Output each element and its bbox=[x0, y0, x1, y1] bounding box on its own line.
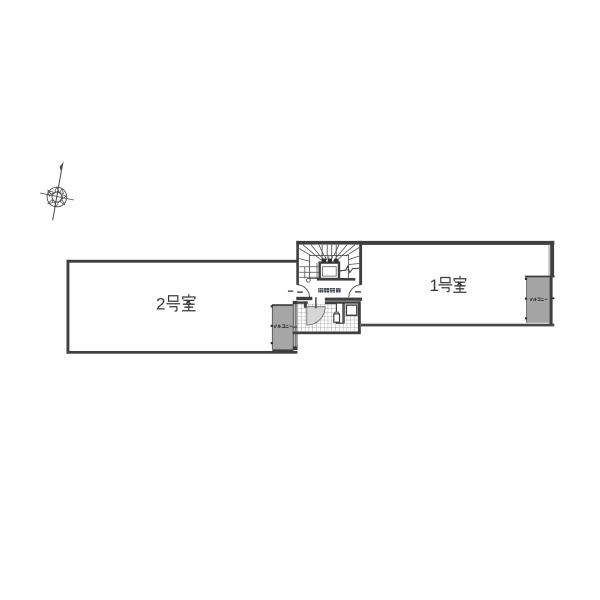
svg-text:2: 2 bbox=[156, 295, 165, 314]
svg-text:1: 1 bbox=[430, 276, 439, 295]
